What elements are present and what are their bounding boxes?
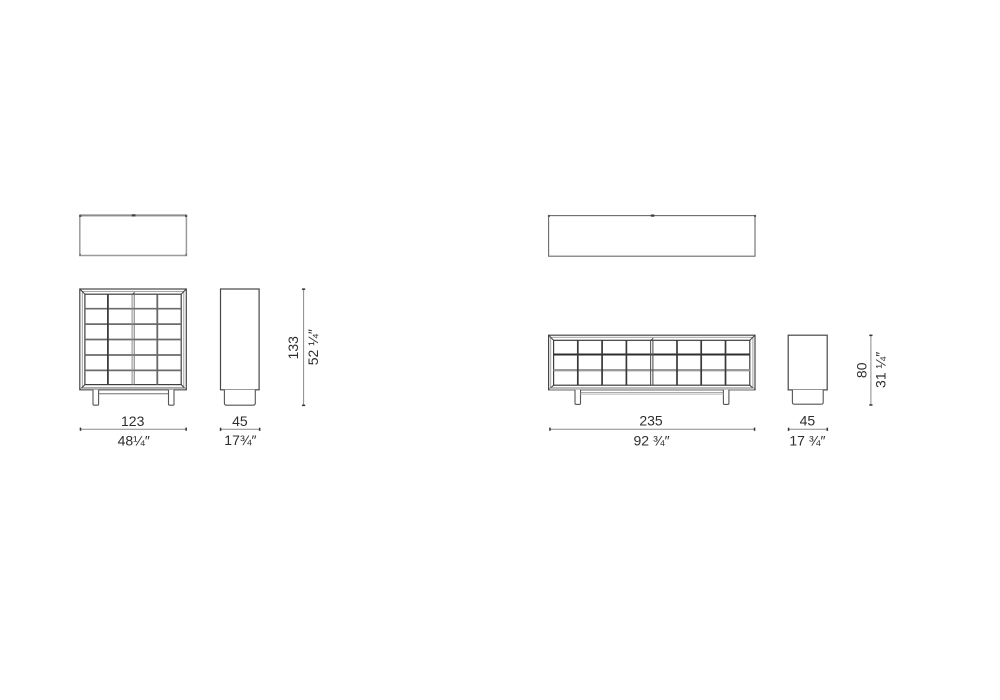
svg-text:123: 123 [121,413,145,429]
svg-text:133: 133 [285,336,301,360]
svg-text:45: 45 [800,413,816,429]
svg-text:48¼″: 48¼″ [118,433,150,449]
svg-text:17¾″: 17¾″ [224,432,256,448]
svg-text:80: 80 [854,362,870,378]
svg-text:52 ¼″: 52 ¼″ [305,329,321,365]
svg-text:45: 45 [232,413,248,429]
svg-text:17 ¾″: 17 ¾″ [789,433,825,449]
svg-text:92 ¾″: 92 ¾″ [633,433,669,449]
svg-text:31 ¼″: 31 ¼″ [872,352,888,388]
svg-text:235: 235 [639,413,663,429]
